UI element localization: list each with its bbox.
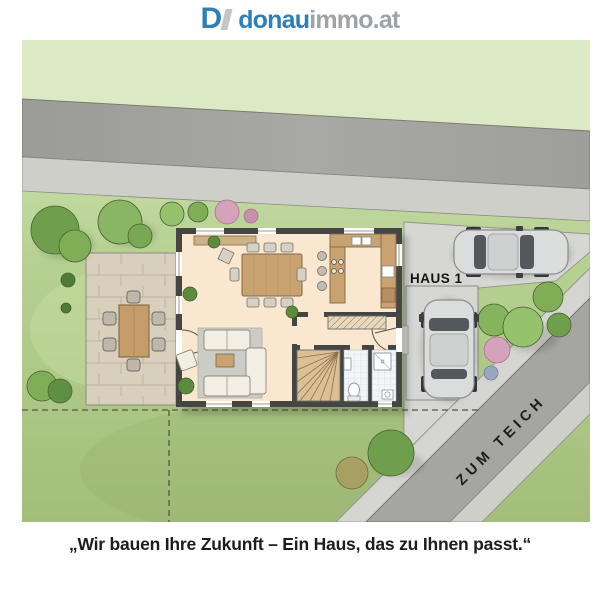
tree [368, 430, 414, 476]
house [176, 228, 402, 407]
shrub [336, 457, 368, 489]
fridge [382, 288, 395, 302]
logo-bar-icon [221, 9, 233, 30]
washer [382, 390, 393, 399]
car-rear-window [431, 369, 467, 379]
flowering-shrub [244, 209, 258, 223]
site-plan-illustration: HAUS 1 ZUM TEICH [22, 40, 590, 522]
wc-room [344, 350, 368, 401]
plant-icon [183, 287, 197, 301]
kitchen-appliance [382, 266, 394, 277]
flowering-shrub [484, 337, 510, 363]
kitchen-sink [352, 237, 361, 245]
shrub [484, 366, 498, 380]
car-vertical [419, 298, 479, 402]
kitchen-sink [362, 237, 371, 245]
shrub [61, 273, 75, 287]
terrace-chair [127, 291, 140, 303]
plant-icon [286, 306, 298, 318]
terrace-chair [152, 338, 165, 351]
bathroom [372, 350, 396, 401]
toilet [349, 383, 360, 397]
car-horizontal [452, 226, 572, 278]
door-opening [396, 328, 402, 352]
tree [59, 230, 91, 262]
site-plan-svg: HAUS 1 ZUM TEICH [22, 40, 590, 522]
car-rear-window [474, 235, 486, 269]
plant-icon [208, 236, 220, 248]
sideboard [194, 236, 256, 245]
tree [547, 313, 571, 337]
logo-name-primary: donau [238, 6, 309, 34]
terrace-chair [103, 338, 116, 351]
door-opening [176, 330, 182, 356]
flowering-shrub [215, 200, 239, 224]
terrace-chair [152, 312, 165, 325]
logo: Ddonauimmo.at [0, 2, 600, 36]
logo-name-secondary: immo.at [309, 6, 399, 34]
tree [533, 282, 563, 312]
staircase [297, 350, 340, 401]
wardrobe [328, 316, 386, 329]
terrace [86, 253, 176, 405]
house-label: HAUS 1 [410, 271, 463, 286]
coffee-table [216, 354, 234, 367]
tree [503, 307, 543, 347]
bar-stools [318, 252, 327, 291]
dining-table [242, 254, 302, 296]
page: Ddonauimmo.at [0, 0, 600, 600]
car-roof [430, 334, 468, 366]
logo-d-icon: D [201, 2, 222, 35]
tree [160, 202, 184, 226]
wash-basin [344, 358, 351, 370]
quote-text: „Wir bauen Ihre Zukunft – Ein Haus, das … [0, 534, 600, 555]
tree [188, 202, 208, 222]
shrub [48, 379, 72, 403]
car-windshield [520, 235, 534, 269]
terrace-chair [127, 359, 140, 371]
kitchen-counter [330, 247, 345, 303]
car-windshield [429, 318, 469, 331]
terrace-chair [103, 312, 116, 325]
shrub [61, 303, 71, 313]
car-roof [488, 234, 518, 270]
plant-icon [178, 378, 194, 394]
tree [128, 224, 152, 248]
